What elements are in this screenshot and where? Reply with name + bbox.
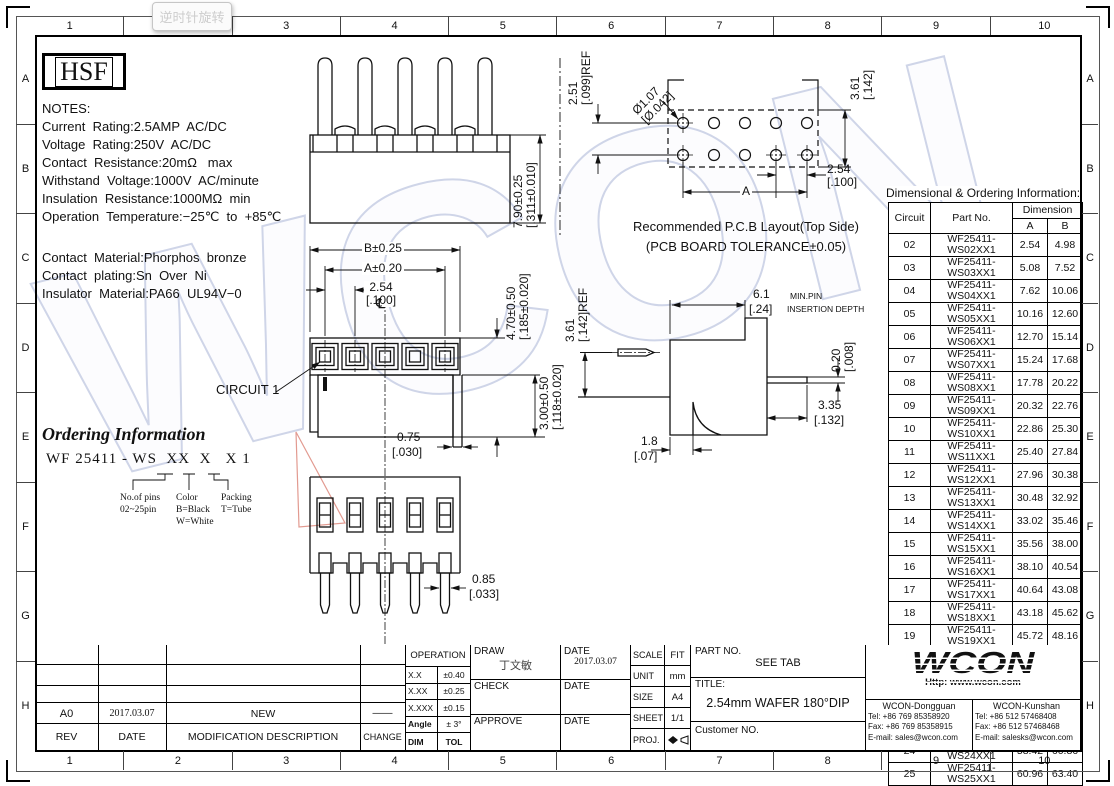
- wcon-kunshan-fax: Fax: +86 512 57468468: [975, 722, 1078, 733]
- scale-label: SCALE: [631, 645, 665, 665]
- table-row: 06WF25411-WS06XX112.7015.14: [889, 326, 1083, 349]
- dim-pcb-span-a: A: [740, 185, 752, 198]
- table-cell: 18: [889, 602, 931, 625]
- revision-table: A0 2017.03.07 NEW —— REV DATE MODIFICATI…: [35, 645, 405, 750]
- dim-side-pin-height: 3.61[.142]REF: [564, 288, 590, 342]
- tol-dim-2: X.XX: [406, 684, 438, 700]
- ordering-code: WF 25411 - WS XX X X 1: [46, 451, 251, 468]
- tol-val-3: ±0.15: [438, 700, 470, 716]
- table-title: Dimensional & Ordering Information:: [886, 186, 1080, 200]
- zone-number: 3: [233, 16, 341, 35]
- table-cell: 38.10: [1013, 556, 1048, 579]
- wcon-dongguan-contact: WCON-Dongguan Tel: +86 769 85358920 Fax:…: [866, 700, 973, 750]
- col-header-circuit: Circuit: [889, 203, 931, 234]
- table-row: 03WF25411-WS03XX15.087.52: [889, 257, 1083, 280]
- title-value: 2.54mm WAFER 180°DIP: [695, 696, 861, 710]
- table-cell: WF25411-WS07XX1: [931, 349, 1013, 372]
- table-cell: 13: [889, 487, 931, 510]
- table-cell: 22.76: [1048, 395, 1083, 418]
- zone-number: 9: [882, 751, 990, 770]
- signature-block: DRAW丁文敏 DATE2017.03.07 CHECK DATE APPROV…: [470, 645, 630, 750]
- note-line: Operation Temperature:−25℃ to +85℃: [42, 208, 281, 226]
- table-cell: 43.18: [1013, 602, 1048, 625]
- wcon-dongguan-email: E-mail: sales@wcon.com: [868, 733, 970, 744]
- size-value: A4: [665, 687, 690, 707]
- table-cell: 15: [889, 533, 931, 556]
- dim-bottom-pin-width: 0.85: [472, 573, 495, 586]
- dim-height-7_90: 7.90±0.25[.311±0.010]: [512, 162, 538, 228]
- table-cell: WF25411-WS15XX1: [931, 533, 1013, 556]
- rev-desc-header: MODIFICATION DESCRIPTION: [166, 724, 360, 750]
- part-no-label: PART NO.: [695, 646, 861, 657]
- table-row: 07WF25411-WS07XX115.2417.68: [889, 349, 1083, 372]
- table-cell: 10.16: [1013, 303, 1048, 326]
- legend-line: B=Black: [176, 504, 214, 516]
- tol-dim-4: Angle: [406, 717, 438, 733]
- customer-no-label: Customer NO.: [691, 722, 865, 750]
- zone-letter: C: [1082, 214, 1098, 304]
- part-no-value: SEE TAB: [695, 657, 861, 669]
- table-cell: 38.00: [1048, 533, 1083, 556]
- note-line: Contact Resistance:20mΩ max: [42, 154, 281, 172]
- hsf-logo: HSF: [42, 53, 126, 90]
- approve-label: APPROVE: [471, 715, 561, 750]
- meta-block: SCALEFIT UNITmm SIZEA4 SHEET1/1 PROJ.: [630, 645, 690, 750]
- drawing-sheet: WCON 12345678910 12345678910 ABCDEFGH AB…: [0, 0, 1114, 786]
- table-cell: 35.56: [1013, 533, 1048, 556]
- trim-mark: [6, 760, 30, 782]
- table-row: 09WF25411-WS09XX120.3222.76: [889, 395, 1083, 418]
- table-row: 11WF25411-WS11XX125.4027.84: [889, 441, 1083, 464]
- pcb-caption-2: (PCB BOARD TOLERANCE±0.05): [596, 240, 896, 253]
- wcon-block: WCON Http: www.wcon.com WCON-Dongguan Te…: [865, 645, 1080, 750]
- table-cell: 17.68: [1048, 349, 1083, 372]
- col-header-a: A: [1013, 219, 1048, 234]
- table-cell: 12.70: [1013, 326, 1048, 349]
- projection-symbol-icon: [665, 729, 690, 750]
- zone-letter: H: [16, 662, 35, 751]
- zone-letter: E: [16, 393, 35, 483]
- table-cell: 10.06: [1048, 280, 1083, 303]
- ordering-legend-pins: No.of pins02~25pin: [120, 492, 160, 516]
- zone-number: 10: [991, 751, 1098, 770]
- projection-label: PROJ.: [631, 729, 665, 750]
- sheet-value: 1/1: [665, 708, 690, 728]
- table-cell: 35.46: [1048, 510, 1083, 533]
- table-cell: 15.24: [1013, 349, 1048, 372]
- legend-line: No.of pins: [120, 492, 160, 504]
- circuit-1-label: CIRCUIT 1: [216, 383, 279, 396]
- legend-line: Packing: [221, 492, 252, 504]
- wcon-kunshan-tel: Tel: +86 512 57468408: [975, 712, 1078, 723]
- tol-val-1: ±0.40: [438, 667, 470, 683]
- zone-letter: G: [16, 572, 35, 662]
- rev-value: A0: [35, 703, 98, 724]
- scale-value: FIT: [665, 645, 690, 665]
- hsf-logo-text: HSF: [55, 57, 113, 87]
- wcon-logo: WCON: [839, 645, 1107, 681]
- draw-date-label: DATE: [564, 646, 627, 657]
- zone-band-left: ABCDEFGH: [16, 35, 35, 750]
- zone-number: 8: [774, 16, 882, 35]
- table-cell: WF25411-WS14XX1: [931, 510, 1013, 533]
- zone-letter: H: [1082, 662, 1098, 751]
- unit-value: mm: [665, 666, 690, 686]
- note-line: Insulation Resistance:1000MΩ min: [42, 190, 281, 208]
- tol-footer-tol: TOL: [438, 733, 470, 750]
- zone-number: 3: [233, 751, 341, 770]
- zone-number: 5: [449, 16, 557, 35]
- wcon-dongguan-tel: Tel: +86 769 85358920: [868, 712, 970, 723]
- zone-number: 1: [16, 751, 124, 770]
- zone-number: 5: [449, 751, 557, 770]
- table-cell: 16: [889, 556, 931, 579]
- table-cell: 14: [889, 510, 931, 533]
- title-label: TITLE:: [695, 679, 861, 690]
- dim-side-depth-in: [.24]: [749, 303, 772, 316]
- table-row: 12WF25411-WS12XX127.9630.38: [889, 464, 1083, 487]
- zone-letter: A: [16, 35, 35, 125]
- pcb-caption-1: Recommended P.C.B Layout(Top Side): [596, 220, 896, 233]
- table-cell: 2.54: [1013, 234, 1048, 257]
- table-cell: 05: [889, 303, 931, 326]
- zone-letter: F: [1082, 483, 1098, 573]
- table-cell: 32.92: [1048, 487, 1083, 510]
- table-row: 15WF25411-WS15XX135.5638.00: [889, 533, 1083, 556]
- dim-pcb-row-pitch: 2.51[.099]REF: [567, 51, 593, 105]
- table-row: 17WF25411-WS17XX140.6443.08: [889, 579, 1083, 602]
- col-header-b: B: [1048, 219, 1083, 234]
- approve-date-label: DATE: [561, 715, 630, 750]
- table-row: 14WF25411-WS14XX133.0235.46: [889, 510, 1083, 533]
- dim-side-tail-length: 3.35: [818, 399, 841, 412]
- table-cell: 17: [889, 579, 931, 602]
- table-cell: 43.08: [1048, 579, 1083, 602]
- zone-number: 4: [341, 16, 449, 35]
- dim-side-tail-length-in: [.132]: [814, 414, 844, 427]
- notes-block: NOTES:Current Rating:2.5AMP AC/DCVoltage…: [42, 100, 281, 226]
- rotate-ccw-tooltip[interactable]: 逆时针旋转: [152, 2, 232, 31]
- check-label: CHECK: [471, 680, 561, 714]
- zone-letter: B: [1082, 125, 1098, 215]
- table-row: 02WF25411-WS02XX12.544.98: [889, 234, 1083, 257]
- zone-letter: A: [1082, 35, 1098, 125]
- table-cell: 30.48: [1013, 487, 1048, 510]
- table-cell: 20.32: [1013, 395, 1048, 418]
- table-cell: 11: [889, 441, 931, 464]
- table-cell: 22.86: [1013, 418, 1048, 441]
- note-line: Current Rating:2.5AMP AC/DC: [42, 118, 281, 136]
- wcon-kunshan-email: E-mail: salesks@wcon.com: [975, 733, 1078, 744]
- table-cell: 07: [889, 349, 931, 372]
- table-cell: 12: [889, 464, 931, 487]
- wcon-dongguan-fax: Fax: +86 769 85358915: [868, 722, 970, 733]
- table-cell: WF25411-WS08XX1: [931, 372, 1013, 395]
- tol-footer-dim: DIM: [406, 733, 438, 750]
- zone-number: 7: [666, 16, 774, 35]
- draw-date-value: 2017.03.07: [564, 657, 627, 667]
- table-cell: 7.52: [1048, 257, 1083, 280]
- table-cell: WF25411-WS06XX1: [931, 326, 1013, 349]
- table-cell: WF25411-WS05XX1: [931, 303, 1013, 326]
- zone-letter: B: [16, 125, 35, 215]
- table-cell: 12.60: [1048, 303, 1083, 326]
- table-cell: WF25411-WS02XX1: [931, 234, 1013, 257]
- table-cell: 5.08: [1013, 257, 1048, 280]
- zone-letter: F: [16, 483, 35, 573]
- table-cell: WF25411-WS13XX1: [931, 487, 1013, 510]
- table-cell: WF25411-WS17XX1: [931, 579, 1013, 602]
- wcon-kunshan-name: WCON-Kunshan: [975, 701, 1078, 712]
- material-line: Contact Material:Phorphos bronze: [42, 249, 247, 267]
- zone-letter: E: [1082, 393, 1098, 483]
- dim-side-tail-thickness: 0.20[.008]: [830, 342, 856, 372]
- zone-number: 6: [557, 751, 665, 770]
- table-cell: 03: [889, 257, 931, 280]
- table-cell: 4.98: [1048, 234, 1083, 257]
- table-cell: 45.62: [1048, 602, 1083, 625]
- side-note-minpin: MIN.PIN: [790, 292, 822, 301]
- table-cell: WF25411-WS12XX1: [931, 464, 1013, 487]
- rev-change-value: ——: [360, 703, 405, 724]
- dim-pcb-edge: 3.61[.142]: [849, 70, 875, 100]
- trim-mark: [1086, 760, 1110, 782]
- table-cell: WF25411-WS10XX1: [931, 418, 1013, 441]
- trim-mark: [1086, 6, 1110, 28]
- dim-bottom-tail-width: 0.75: [397, 431, 420, 444]
- dim-bottom-tail-width-in: [.030]: [392, 446, 422, 459]
- rev-desc-value: NEW: [166, 703, 360, 724]
- tolerance-title: OPERATION: [406, 645, 470, 667]
- note-line: NOTES:: [42, 100, 281, 118]
- dim-side-standoff-in: [.07]: [634, 450, 657, 463]
- table-cell: 15.14: [1048, 326, 1083, 349]
- table-cell: WF25411-WS16XX1: [931, 556, 1013, 579]
- draw-name: 丁文敏: [474, 657, 557, 673]
- centerline-symbol: ℄: [376, 297, 385, 310]
- table-cell: 20.22: [1048, 372, 1083, 395]
- zone-number: 8: [774, 751, 882, 770]
- material-line: Insulator Material:PA66 UL94V−0: [42, 285, 247, 303]
- table-cell: 40.54: [1048, 556, 1083, 579]
- zone-number: 7: [666, 751, 774, 770]
- table-cell: 04: [889, 280, 931, 303]
- note-line: Withstand Voltage:1000V AC/minute: [42, 172, 281, 190]
- legend-line: W=White: [176, 516, 214, 528]
- tol-dim-1: X.X: [406, 667, 438, 683]
- note-line: Voltage Rating:250V AC/DC: [42, 136, 281, 154]
- table-cell: 27.84: [1048, 441, 1083, 464]
- rev-date-value: 2017.03.07: [98, 703, 166, 724]
- materials-block: Contact Material:Phorphos bronzeContact …: [42, 249, 247, 303]
- tol-val-2: ±0.25: [438, 684, 470, 700]
- table-cell: 25.30: [1048, 418, 1083, 441]
- tol-dim-3: X.XXX: [406, 700, 438, 716]
- size-label: SIZE: [631, 687, 665, 707]
- dim-pcb-pitch: 2.54[.100]: [827, 163, 857, 189]
- table-row: 18WF25411-WS18XX143.1845.62: [889, 602, 1083, 625]
- title-block: A0 2017.03.07 NEW —— REV DATE MODIFICATI…: [35, 645, 1080, 750]
- draw-label: DRAW: [474, 646, 557, 657]
- table-row: 10WF25411-WS10XX122.8625.30: [889, 418, 1083, 441]
- table-row: 13WF25411-WS13XX130.4832.92: [889, 487, 1083, 510]
- table-cell: 08: [889, 372, 931, 395]
- zone-number: 2: [124, 751, 232, 770]
- zone-letter: D: [1082, 304, 1098, 394]
- trim-mark: [6, 6, 30, 28]
- table-cell: 09: [889, 395, 931, 418]
- ordering-legend-packing: PackingT=Tube: [221, 492, 252, 516]
- dim-side-depth: 6.1: [753, 288, 770, 301]
- zone-number: 4: [341, 751, 449, 770]
- table-cell: 10: [889, 418, 931, 441]
- zone-number: 10: [991, 16, 1098, 35]
- table-cell: 7.62: [1013, 280, 1048, 303]
- table-row: 04WF25411-WS04XX17.6210.06: [889, 280, 1083, 303]
- legend-line: T=Tube: [221, 504, 252, 516]
- dim-front-height-470: 4.70±0.50[.185±0.020]: [505, 273, 531, 340]
- table-cell: WF25411-WS11XX1: [931, 441, 1013, 464]
- dim-side-standoff: 1.8: [641, 435, 658, 448]
- zone-number: 6: [557, 16, 665, 35]
- table-cell: 30.38: [1048, 464, 1083, 487]
- dim-front-b: B±0.25: [362, 242, 404, 255]
- tolerance-block: OPERATION X.X±0.40 X.XX±0.25 X.XXX±0.15 …: [405, 645, 470, 750]
- zone-letter: C: [16, 214, 35, 304]
- table-cell: WF25411-WS09XX1: [931, 395, 1013, 418]
- table-cell: 02: [889, 234, 931, 257]
- table-row: 16WF25411-WS16XX138.1040.54: [889, 556, 1083, 579]
- table-cell: WF25411-WS18XX1: [931, 602, 1013, 625]
- sheet-label: SHEET: [631, 708, 665, 728]
- wcon-dongguan-name: WCON-Dongguan: [868, 701, 970, 712]
- zone-letter: G: [1082, 572, 1098, 662]
- material-line: Contact plating:Sn Over Ni: [42, 267, 247, 285]
- col-header-dimension: Dimension: [1013, 203, 1083, 219]
- zone-letter: D: [16, 304, 35, 394]
- rev-header: REV: [35, 724, 98, 750]
- legend-line: Color: [176, 492, 214, 504]
- table-cell: WF25411-WS03XX1: [931, 257, 1013, 280]
- table-cell: WF25411-WS04XX1: [931, 280, 1013, 303]
- table-cell: 33.02: [1013, 510, 1048, 533]
- col-header-part: Part No.: [931, 203, 1013, 234]
- table-cell: 27.96: [1013, 464, 1048, 487]
- dim-bottom-pin-width-in: [.033]: [469, 588, 499, 601]
- unit-label: UNIT: [631, 666, 665, 686]
- zone-number: 9: [882, 16, 990, 35]
- table-cell: 06: [889, 326, 931, 349]
- zone-band-right: ABCDEFGH: [1082, 35, 1098, 750]
- rev-date-header: DATE: [98, 724, 166, 750]
- dim-front-a: A±0.20: [362, 262, 404, 275]
- table-cell: 25.40: [1013, 441, 1048, 464]
- legend-line: 02~25pin: [120, 504, 160, 516]
- ordering-title: Ordering Information: [42, 424, 206, 445]
- table-cell: 17.78: [1013, 372, 1048, 395]
- table-row: 05WF25411-WS05XX110.1612.60: [889, 303, 1083, 326]
- tol-val-4: ± 3°: [438, 717, 470, 733]
- zone-number: 1: [16, 16, 124, 35]
- zone-band-bottom: 12345678910: [16, 751, 1098, 770]
- wcon-kunshan-contact: WCON-Kunshan Tel: +86 512 57468408 Fax: …: [973, 700, 1080, 750]
- table-row: 08WF25411-WS08XX117.7820.22: [889, 372, 1083, 395]
- table-cell: 40.64: [1013, 579, 1048, 602]
- dim-front-height-300: 3.00±0.50[.118±0.020]: [538, 364, 564, 430]
- ordering-legend-color: ColorB=BlackW=White: [176, 492, 214, 528]
- side-note-insertion: INSERTION DEPTH: [787, 305, 864, 314]
- check-date-label: DATE: [561, 680, 630, 714]
- rev-change-header: CHANGE: [360, 724, 405, 750]
